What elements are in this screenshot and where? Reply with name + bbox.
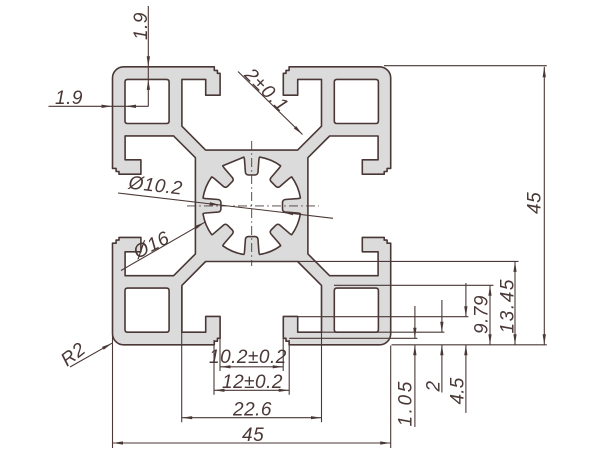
svg-text:9.79: 9.79 [472,295,493,334]
svg-text:1.9: 1.9 [131,12,152,40]
svg-text:22.6: 22.6 [232,400,272,421]
svg-text:1.05: 1.05 [396,379,417,426]
svg-text:2: 2 [424,380,445,392]
svg-text:45: 45 [242,425,264,446]
svg-text:13.45: 13.45 [498,278,519,334]
svg-text:45: 45 [525,192,546,214]
svg-text:10.2±0.2: 10.2±0.2 [209,347,287,368]
svg-text:1.9: 1.9 [55,88,83,109]
svg-text:4.5: 4.5 [448,377,469,404]
svg-text:12±0.2: 12±0.2 [222,372,283,393]
